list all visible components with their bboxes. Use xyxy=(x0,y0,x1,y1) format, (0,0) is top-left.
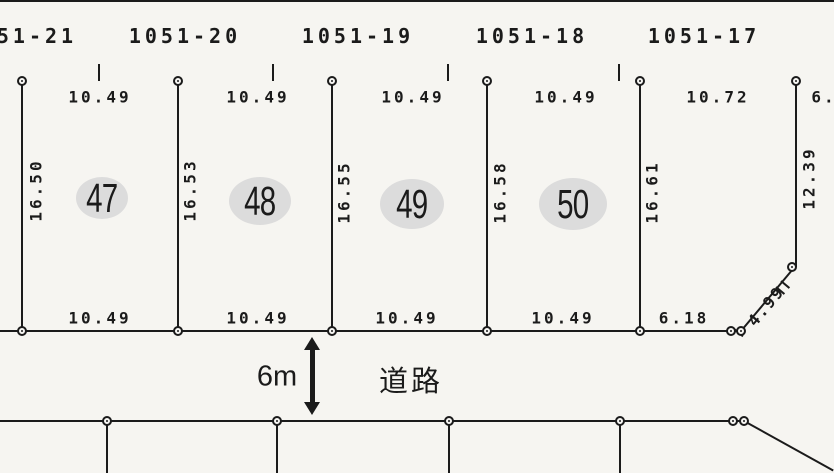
survey-marker xyxy=(635,326,645,336)
arrow-down-head xyxy=(304,402,320,415)
road-width-label: 6m xyxy=(257,361,297,394)
survey-marker xyxy=(739,416,749,426)
parcel-number: 47 xyxy=(86,178,117,219)
dimension-label: 16.55 xyxy=(335,160,354,223)
survey-marker xyxy=(327,76,337,86)
survey-marker xyxy=(482,326,492,336)
lower-parcel-divider-line xyxy=(276,421,278,473)
cadastral-map: 51-21 1051-20 1051-19 1051-18 1051-17 10… xyxy=(0,0,834,473)
dimension-label: 16.61 xyxy=(643,160,662,223)
road-corner-line xyxy=(744,420,834,471)
arrow-shaft xyxy=(310,346,315,406)
parcel-divider-line xyxy=(331,80,333,332)
dimension-label: 6. xyxy=(811,88,834,107)
parcel-ellipse: 49 xyxy=(380,179,444,229)
lot-divider-tick xyxy=(272,64,274,81)
parcel-divider-line xyxy=(21,80,23,332)
lower-parcel-divider-line xyxy=(106,421,108,473)
lot-number-label: 1051-17 xyxy=(648,24,760,48)
lot-number-label: 1051-18 xyxy=(476,24,588,48)
dimension-label: 6.18 xyxy=(659,309,710,328)
survey-marker xyxy=(615,416,625,426)
survey-marker xyxy=(635,76,645,86)
diagonal-dim-tick xyxy=(780,280,790,289)
dimension-label: 10.49 xyxy=(381,88,444,107)
survey-marker xyxy=(726,326,736,336)
survey-marker xyxy=(173,76,183,86)
survey-marker xyxy=(791,76,801,86)
dimension-label: 10.49 xyxy=(531,309,594,328)
survey-marker xyxy=(17,76,27,86)
dimension-label: 10.49 xyxy=(68,309,131,328)
survey-marker xyxy=(327,326,337,336)
survey-marker xyxy=(787,262,797,272)
lower-parcel-divider-line xyxy=(619,421,621,473)
dimension-label: 10.72 xyxy=(686,88,749,107)
parcel-ellipse: 50 xyxy=(539,178,607,230)
survey-marker xyxy=(272,416,282,426)
parcel-divider-line xyxy=(639,80,641,332)
parcel-divider-line xyxy=(486,80,488,332)
parcel-ellipse: 47 xyxy=(76,177,128,219)
lot-divider-tick xyxy=(618,64,620,81)
survey-marker xyxy=(482,76,492,86)
lot-number-label: 1051-19 xyxy=(302,24,414,48)
road-label: 道路 xyxy=(379,358,443,400)
lot-number-label: 1051-20 xyxy=(129,24,241,48)
north-boundary-line xyxy=(0,0,834,2)
lot-divider-tick xyxy=(98,64,100,81)
survey-marker xyxy=(444,416,454,426)
survey-marker xyxy=(736,326,746,336)
survey-marker xyxy=(728,416,738,426)
dimension-label: 10.49 xyxy=(375,309,438,328)
dimension-label: 16.58 xyxy=(491,160,510,223)
lot-number-label: 51-21 xyxy=(0,24,77,48)
road-width-arrow-icon xyxy=(304,337,320,415)
lot-divider-tick xyxy=(447,64,449,81)
east-boundary-line xyxy=(795,80,797,267)
dimension-label: 10.49 xyxy=(534,88,597,107)
parcel-number: 48 xyxy=(244,181,275,222)
parcel-divider-line xyxy=(177,80,179,332)
dimension-label: 16.50 xyxy=(27,158,46,221)
survey-marker xyxy=(17,326,27,336)
south-boundary-line xyxy=(0,330,742,332)
parcel-ellipse: 48 xyxy=(229,177,291,225)
dimension-label: 4.99 xyxy=(744,282,788,330)
lower-parcel-divider-line xyxy=(448,421,450,473)
dimension-label: 16.53 xyxy=(181,158,200,221)
parcel-number: 50 xyxy=(557,184,588,225)
dimension-label: 12.39 xyxy=(800,146,819,209)
survey-marker xyxy=(173,326,183,336)
survey-marker xyxy=(102,416,112,426)
dimension-label: 10.49 xyxy=(68,88,131,107)
dimension-label: 10.49 xyxy=(226,309,289,328)
dimension-label: 10.49 xyxy=(226,88,289,107)
parcel-number: 49 xyxy=(396,184,427,225)
